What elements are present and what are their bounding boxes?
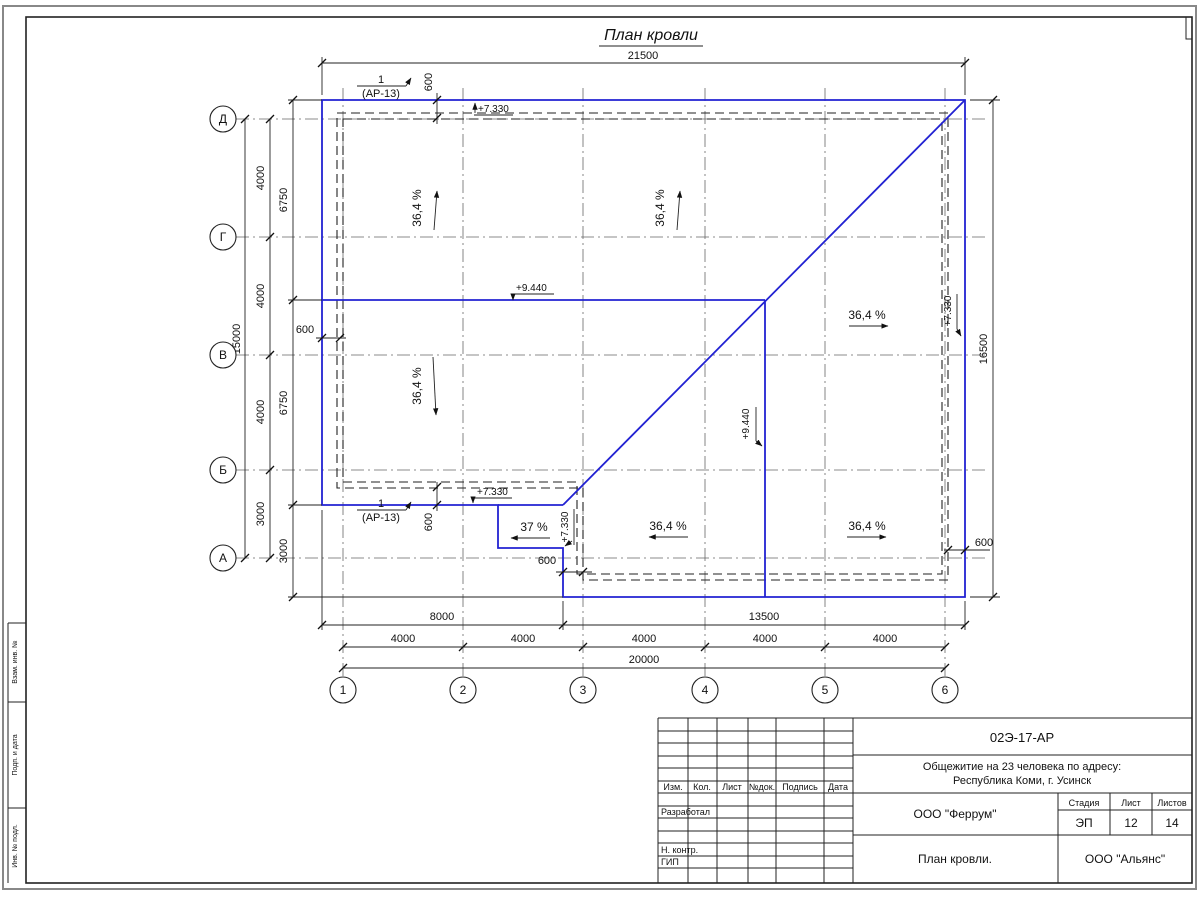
tb-col-list: Лист <box>722 782 742 792</box>
tb-role-ncontrol: Н. контр. <box>661 845 698 855</box>
dim-bottom-axis-1: 4000 <box>391 633 415 645</box>
dim-bottom-span-2: 13500 <box>749 611 780 623</box>
callout-reference: (АР-13) <box>362 512 400 524</box>
axis-row-label: А <box>219 551 227 565</box>
tb-contractor-org: ООО "Альянс" <box>1085 852 1165 866</box>
side-stamp-column: Взам. инв. № Подп. и дата Инв. № подл. <box>8 623 26 883</box>
section-callout-bottom: 1 (АР-13) <box>357 498 411 524</box>
dimension-lines <box>245 63 993 668</box>
tb-col-podpis: Подпись <box>782 782 818 792</box>
axis-col-label: 4 <box>702 683 709 697</box>
title-block: Изм. Кол. Лист №док. Подпись Дата Разраб… <box>658 718 1192 883</box>
page-title: План кровли <box>604 27 698 44</box>
extension-lines <box>288 57 1000 630</box>
side-stamp-label: Взам. инв. № <box>12 640 19 683</box>
dim-inner-chain-1: 6750 <box>278 188 290 212</box>
slope-label-bottom-right: 36,4 % <box>848 519 886 533</box>
axis-row-label: Б <box>219 463 227 477</box>
slope-label-right: 36,4 % <box>848 308 886 322</box>
dim-overhang-bottom-left: 600 <box>423 513 435 531</box>
dim-bottom-axis-2: 4000 <box>511 633 535 645</box>
outer-border <box>3 6 1196 889</box>
tb-role-developer: Разработал <box>661 807 710 817</box>
slope-label-canopy: 37 % <box>520 520 548 534</box>
axis-grid <box>236 88 985 677</box>
tb-stage-label: Стадия <box>1069 798 1100 808</box>
dim-right-overall: 16500 <box>978 334 990 365</box>
elevation-eave-notch: +7.330 <box>560 511 571 542</box>
dim-top-overall: 21500 <box>628 50 659 62</box>
tb-sheets-total: 14 <box>1165 816 1179 830</box>
axis-row-label: Г <box>220 230 227 244</box>
dim-left-chain-4: 3000 <box>255 502 267 526</box>
tb-doc-number: 02Э-17-АР <box>990 730 1054 745</box>
drawing-sheet: План кровли <box>0 0 1200 900</box>
callout-number: 1 <box>378 498 384 510</box>
valley-line <box>563 100 965 505</box>
slope-label-bottom-middle: 36,4 % <box>649 519 687 533</box>
tb-sheets-label: Листов <box>1157 798 1186 808</box>
sheet-frame <box>3 6 1196 889</box>
elevation-marks: +7.330 +9.440 +7.330 +7.330 +7.330 +9.44… <box>473 103 961 546</box>
tb-col-kol: Кол. <box>693 782 711 792</box>
inner-border <box>26 17 1192 883</box>
dim-bottom-axis-3: 4000 <box>632 633 656 645</box>
slope-label-top-middle: 36,4 % <box>653 189 667 227</box>
callout-reference: (АР-13) <box>362 88 400 100</box>
tb-sheet-number: 12 <box>1124 816 1138 830</box>
axis-row-label: В <box>219 348 227 362</box>
dim-overhang-notch: 600 <box>538 555 556 567</box>
dim-left-chain-1: 4000 <box>255 166 267 190</box>
dim-bottom-overall: 20000 <box>629 654 660 666</box>
elevation-eave-bottom-left: +7.330 <box>477 487 508 498</box>
axis-col-label: 3 <box>580 683 587 697</box>
wall-outline-dashed <box>337 113 948 580</box>
dim-left-chain-3: 4000 <box>255 400 267 424</box>
tb-designer-org: ООО "Феррум" <box>914 807 997 821</box>
dim-overhang-right: 600 <box>975 537 993 549</box>
axis-col-label: 2 <box>460 683 467 697</box>
tb-col-izm: Изм. <box>663 782 682 792</box>
dim-inner-chain-2: 6750 <box>278 391 290 415</box>
elevation-ridge: +9.440 <box>516 283 547 294</box>
tb-col-ndok: №док. <box>749 782 775 792</box>
tb-object-line1: Общежитие на 23 человека по адресу: <box>923 761 1121 773</box>
roof-plan-drawing: План кровли <box>0 0 1200 900</box>
elevation-eave-top: +7.330 <box>478 104 509 115</box>
axis-row-label: Д <box>219 112 227 126</box>
dim-bottom-axis-4: 4000 <box>753 633 777 645</box>
axis-col-label: 5 <box>822 683 829 697</box>
tb-drawing-title: План кровли. <box>918 852 992 866</box>
callout-number: 1 <box>378 74 384 86</box>
dim-left-chain-2: 4000 <box>255 284 267 308</box>
dim-overhang-left: 600 <box>296 324 314 336</box>
elevation-eave-right: +7.330 <box>943 295 954 326</box>
dim-inner-chain-3: 3000 <box>278 539 290 563</box>
tb-stage-value: ЭП <box>1075 816 1092 830</box>
tb-col-data: Дата <box>828 782 848 792</box>
dim-bottom-axis-5: 4000 <box>873 633 897 645</box>
section-callout-top: 1 (АР-13) <box>357 74 411 100</box>
slope-label-mid-left: 36,4 % <box>410 367 424 405</box>
axis-col-label: 1 <box>340 683 347 697</box>
slope-labels: 36,4 % 36,4 % 36,4 % 36,4 % 36,4 % 36,4 … <box>410 189 888 538</box>
tb-object-line2: Республика Коми, г. Усинск <box>953 775 1091 787</box>
dim-bottom-span-1: 8000 <box>430 611 454 623</box>
dim-overhang-top: 600 <box>423 73 435 91</box>
elevation-ridge-vertical: +9.440 <box>741 408 752 439</box>
axis-markers-cols: 1 2 3 4 5 6 <box>330 677 958 703</box>
tb-sheet-label: Лист <box>1121 798 1141 808</box>
top-right-stamp-box <box>1186 17 1192 39</box>
tb-role-gip: ГИП <box>661 857 679 867</box>
axis-col-label: 6 <box>942 683 949 697</box>
side-stamp-label: Подп. и дата <box>12 734 19 775</box>
side-stamp-label: Инв. № подл. <box>12 824 19 868</box>
slope-label-top-left: 36,4 % <box>410 189 424 227</box>
